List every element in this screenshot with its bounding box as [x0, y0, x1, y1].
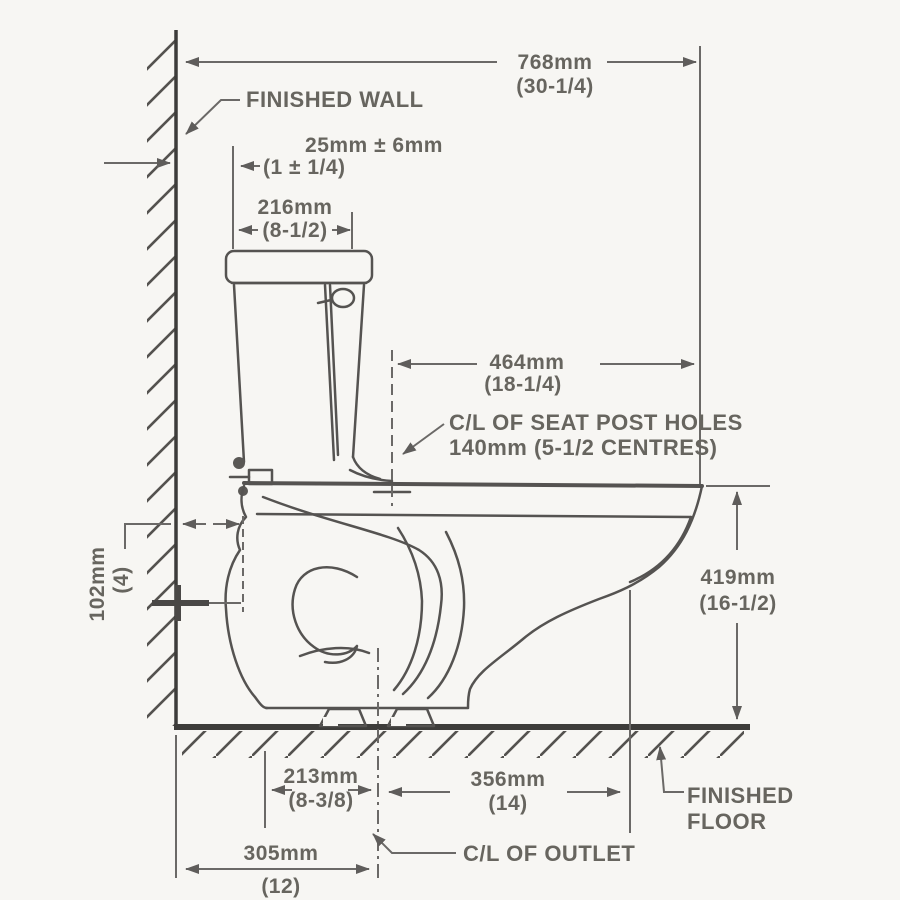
outlet-label: C/L OF OUTLET: [373, 834, 635, 866]
dim-464-in: (18-1/4): [484, 373, 562, 396]
flush-lever-arm: [318, 300, 331, 303]
dim-25-in: (1 ± 1/4): [263, 156, 346, 179]
dim-305: 305mm (12): [176, 735, 369, 898]
dim-102-mm: 102mm: [86, 547, 109, 622]
flush-lever-icon: [332, 289, 354, 307]
dim-356-mm: 356mm: [471, 768, 546, 791]
seat-top-line: [244, 483, 702, 486]
finished-floor-text-line2: FLOOR: [687, 809, 767, 834]
dim-25-mm: 25mm ± 6mm: [305, 134, 443, 157]
finished-wall-text: FINISHED WALL: [246, 87, 424, 112]
dim-305-mm: 305mm: [244, 842, 319, 865]
bolt-cap-notch-left: [323, 717, 338, 726]
bowl-front-curve: [468, 486, 702, 707]
seat-post-label: C/L OF SEAT POST HOLES 140mm (5-1/2 CENT…: [403, 410, 743, 460]
dim-768-mm: 768mm: [518, 51, 593, 74]
finished-wall-label: FINISHED WALL: [186, 87, 424, 134]
tank-overflow-tube: [325, 285, 338, 460]
tank-bolt-upper: [233, 457, 245, 469]
finished-wall-structure: [147, 30, 176, 729]
wall-hatching: [147, 40, 175, 726]
outlet-leader: [373, 834, 456, 853]
dim-768-in: (30-1/4): [516, 75, 594, 98]
dim-216-in: (8-1/2): [262, 219, 327, 242]
dim-356-in: (14): [488, 792, 527, 815]
tank-left-side: [234, 285, 244, 462]
finished-floor-text-line1: FINISHED: [687, 783, 794, 808]
dim-213-mm: 213mm: [284, 765, 359, 788]
bolt-cap-notch-right: [391, 717, 406, 726]
bowl-back-curve: [226, 486, 267, 708]
diagram-svg: 768mm (30-1/4) FINISHED WALL 25mm ± 6mm …: [0, 0, 900, 900]
dim-213: 213mm (8-3/8): [265, 751, 371, 828]
trapway-swoosh: [263, 497, 442, 694]
outlet-text: C/L OF OUTLET: [463, 841, 635, 866]
dim-216-mm: 216mm: [258, 196, 333, 219]
finished-floor-structure: [174, 727, 750, 758]
dim-419: 419mm (16-1/2): [699, 486, 777, 719]
rough-in-diagram: 768mm (30-1/4) FINISHED WALL 25mm ± 6mm …: [0, 0, 900, 900]
tank-lid: [226, 251, 372, 283]
dim-102-in: (4): [110, 566, 133, 593]
trapway-pipe-right: [428, 532, 464, 698]
finished-wall-leader: [186, 100, 240, 134]
dim-464-mm: 464mm: [490, 351, 565, 374]
trapway-pipe-left: [394, 528, 422, 690]
dim-356: 356mm (14): [389, 590, 630, 833]
seat-post-leader: [403, 424, 444, 454]
dim-216: 216mm (8-1/2): [239, 196, 352, 249]
tank-right-side: [353, 285, 364, 457]
dim-419-in: (16-1/2): [699, 592, 777, 615]
dim-305-in: (12): [261, 875, 300, 898]
seat-post-text-line1: C/L OF SEAT POST HOLES: [449, 410, 743, 435]
dim-464: 464mm (18-1/4): [398, 351, 694, 396]
bowl-inner-curve: [630, 517, 691, 582]
seat-post-text-line2: 140mm (5-1/2 CENTRES): [449, 435, 717, 460]
finished-floor-label: FINISHED FLOOR: [660, 747, 794, 834]
dim-419-mm: 419mm: [701, 566, 776, 589]
dim-213-in: (8-3/8): [288, 789, 353, 812]
